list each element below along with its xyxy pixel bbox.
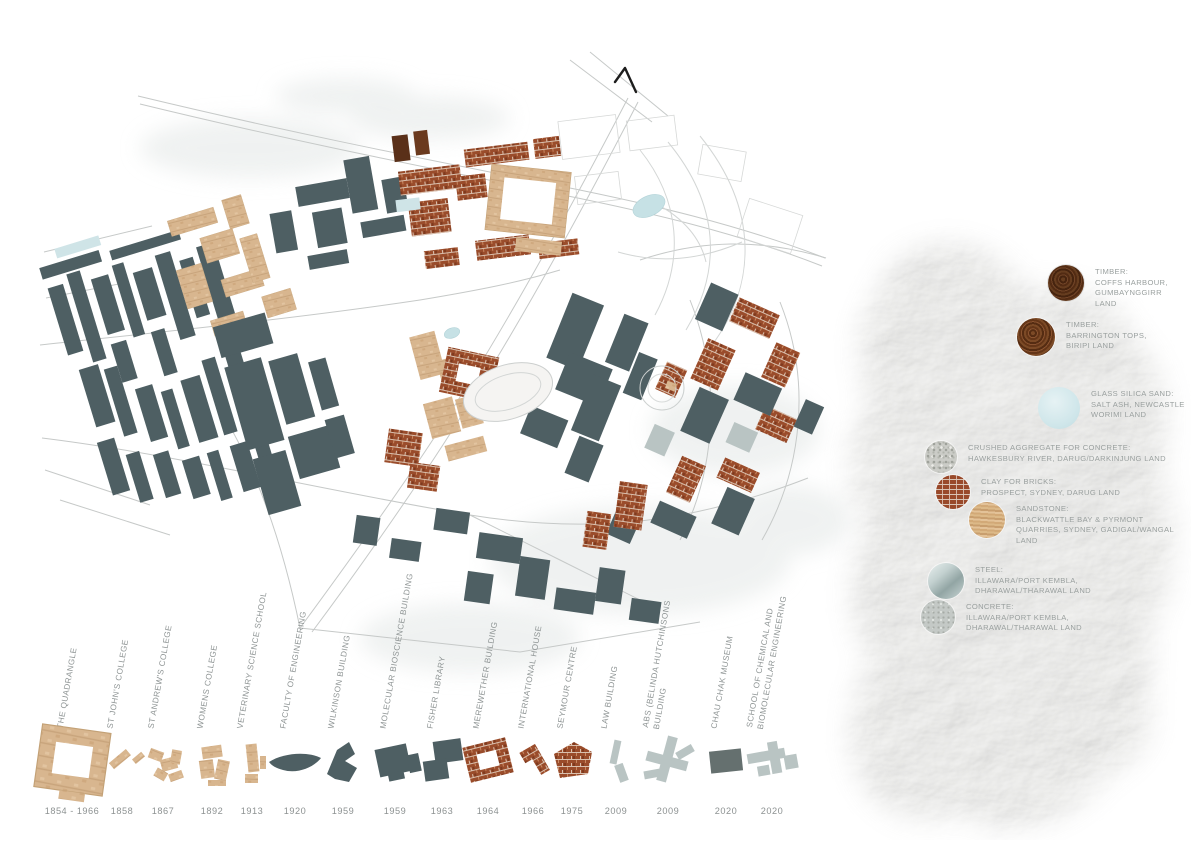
building-timeline: THE QUADRANGLE 1854 - 1966 ST JOHN'S COL… <box>0 0 1191 843</box>
campus-materials-poster: TIMBER: COFFS HARBOUR, GUMBAYNGGIRR LAND… <box>0 0 1191 843</box>
abs-building-footprint-icon <box>636 728 700 792</box>
timeline-item-chem-school: SCHOOL OF CHEMICAL AND BIOMOLECULAR ENGI… <box>740 545 804 830</box>
chem-school-footprint-icon <box>740 728 804 792</box>
timeline-item-abs-building: ABS (BELINDA HUTCHINSONS BUILDING 2009 <box>636 545 700 830</box>
